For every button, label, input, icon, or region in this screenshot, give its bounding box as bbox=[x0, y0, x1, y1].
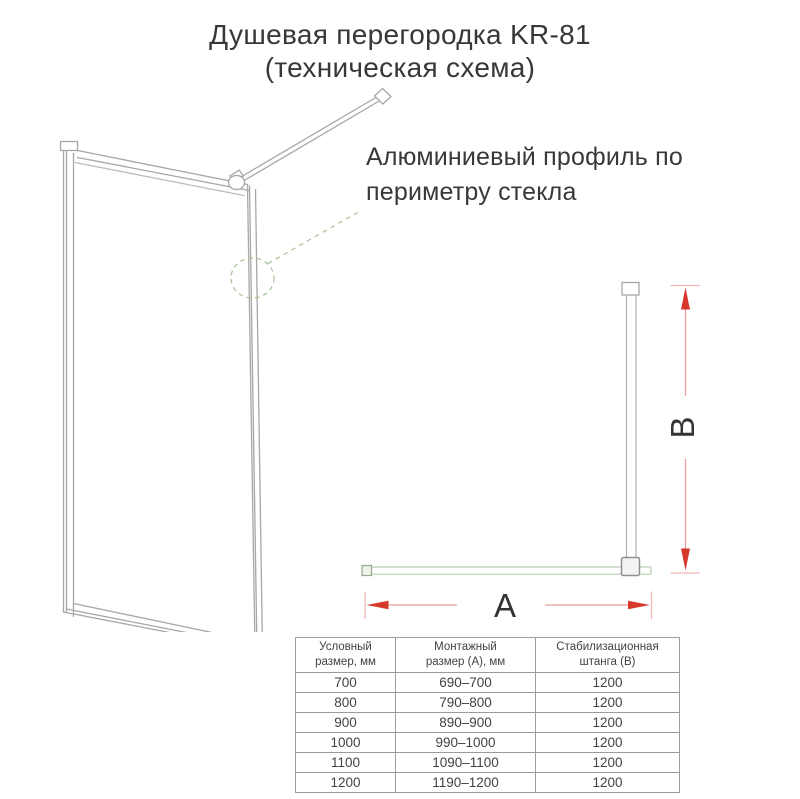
table-cell: 1100 bbox=[296, 752, 396, 772]
table-cell: 690–700 bbox=[396, 672, 536, 692]
rod-bracket-knob bbox=[229, 176, 245, 190]
frame-right-stile bbox=[248, 185, 263, 633]
frame-top-cap bbox=[61, 142, 78, 151]
table-row: 900890–9001200 bbox=[296, 712, 680, 732]
table-cell: 1200 bbox=[536, 692, 680, 712]
table-row: 11001090–11001200 bbox=[296, 752, 680, 772]
table-cell: 1200 bbox=[536, 752, 680, 772]
table-cell: 900 bbox=[296, 712, 396, 732]
plan-view bbox=[362, 283, 651, 576]
table-cell: 800 bbox=[296, 692, 396, 712]
diagram-canvas: B A bbox=[0, 0, 800, 632]
table-row: 1000990–10001200 bbox=[296, 732, 680, 752]
profile-annotation-line2: периметру стекла bbox=[366, 178, 577, 206]
size-table-header: Условный размер, мм Монтажный размер (А)… bbox=[296, 638, 680, 673]
table-cell: 700 bbox=[296, 672, 396, 692]
rod-plan-connector bbox=[622, 558, 640, 576]
profile-annotation: Алюминиевый профиль по периметру стекла bbox=[366, 140, 683, 210]
rod-plan-bar bbox=[627, 295, 637, 560]
frame-top-rail bbox=[78, 151, 250, 191]
table-cell: 890–900 bbox=[396, 712, 536, 732]
dim-a-arrow-left bbox=[367, 601, 389, 610]
rod-lines bbox=[240, 97, 380, 182]
header-row: Условный размер, мм Монтажный размер (А)… bbox=[296, 638, 680, 673]
table-cell: 1200 bbox=[536, 712, 680, 732]
dim-b-label: B bbox=[664, 416, 701, 438]
table-cell: 1190–1200 bbox=[396, 772, 536, 792]
size-table: Условный размер, мм Монтажный размер (А)… bbox=[295, 637, 680, 793]
table-row: 800790–8001200 bbox=[296, 692, 680, 712]
table-cell: 1200 bbox=[536, 772, 680, 792]
dim-b-arrow-down bbox=[681, 549, 690, 571]
glass-plan-left-cap bbox=[362, 566, 372, 576]
header-mounting-size: Монтажный размер (А), мм bbox=[396, 638, 536, 673]
table-cell: 1200 bbox=[536, 672, 680, 692]
dim-b-arrow-up bbox=[681, 288, 690, 310]
dimension-a: A bbox=[365, 587, 652, 624]
profile-annotation-line1: Алюминиевый профиль по bbox=[366, 143, 683, 171]
table-row: 12001190–12001200 bbox=[296, 772, 680, 792]
rod-plan-top-cap bbox=[622, 283, 639, 296]
dimension-b: B bbox=[664, 286, 701, 574]
dim-a-label: A bbox=[494, 587, 516, 624]
table-cell: 1090–1100 bbox=[396, 752, 536, 772]
panel-3d-view bbox=[61, 142, 263, 633]
table-cell: 1200 bbox=[296, 772, 396, 792]
table-cell: 790–800 bbox=[396, 692, 536, 712]
frame-bottom-rail bbox=[64, 604, 256, 633]
frame-left-stile bbox=[64, 148, 74, 617]
leader-line bbox=[268, 213, 358, 264]
glass-plan-lines bbox=[363, 567, 651, 574]
dim-a-arrow-right bbox=[628, 601, 650, 610]
detail-circle bbox=[231, 258, 274, 298]
table-row: 700690–7001200 bbox=[296, 672, 680, 692]
size-table-body: 700690–7001200800790–8001200900890–90012… bbox=[296, 672, 680, 792]
header-stabilizer-bar: Стабилизационная штанга (В) bbox=[536, 638, 680, 673]
table-cell: 1200 bbox=[536, 732, 680, 752]
table-cell: 1000 bbox=[296, 732, 396, 752]
table-cell: 990–1000 bbox=[396, 732, 536, 752]
technical-scheme-page: Душевая перегородка KR-81 (техническая с… bbox=[0, 0, 800, 799]
header-nominal-size: Условный размер, мм bbox=[296, 638, 396, 673]
